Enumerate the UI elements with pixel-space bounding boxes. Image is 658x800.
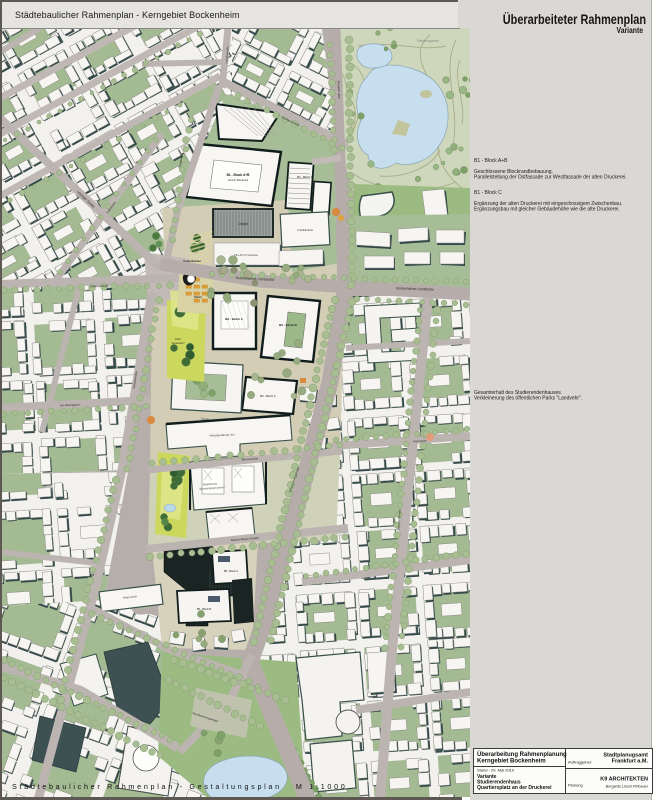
svg-text:B2 - Block A: B2 - Block A [225,317,243,321]
svg-text:B1 - Block A+B: B1 - Block A+B [227,173,251,177]
svg-text:Park: Park [175,337,181,341]
svg-text:"Landwehr": "Landwehr" [171,341,185,345]
svg-text:Depot: Depot [238,222,247,226]
svg-text:B2 - Block B: B2 - Block B [279,323,298,327]
svg-text:Städtebaulicher Rahmenplan - G: Städtebaulicher Rahmenplan - Gestaltungs… [12,782,348,791]
svg-text:Geschl. Blockrand: Geschl. Blockrand [228,179,249,182]
svg-text:Zeppelin allee: Zeppelin allee [337,81,342,100]
svg-text:Adalbertstraße: Adalbertstraße [90,284,110,289]
svg-text:Palmengarten: Palmengarten [417,39,439,43]
svg-text:B2 - Block C: B2 - Block C [260,394,276,398]
svg-text:Markt: Markt [194,295,202,299]
svg-text:Unibibliothek: Unibibliothek [297,228,314,232]
svg-text:B1 - Block C: B1 - Block C [297,175,313,179]
svg-text:Am Weingarten: Am Weingarten [60,403,81,408]
